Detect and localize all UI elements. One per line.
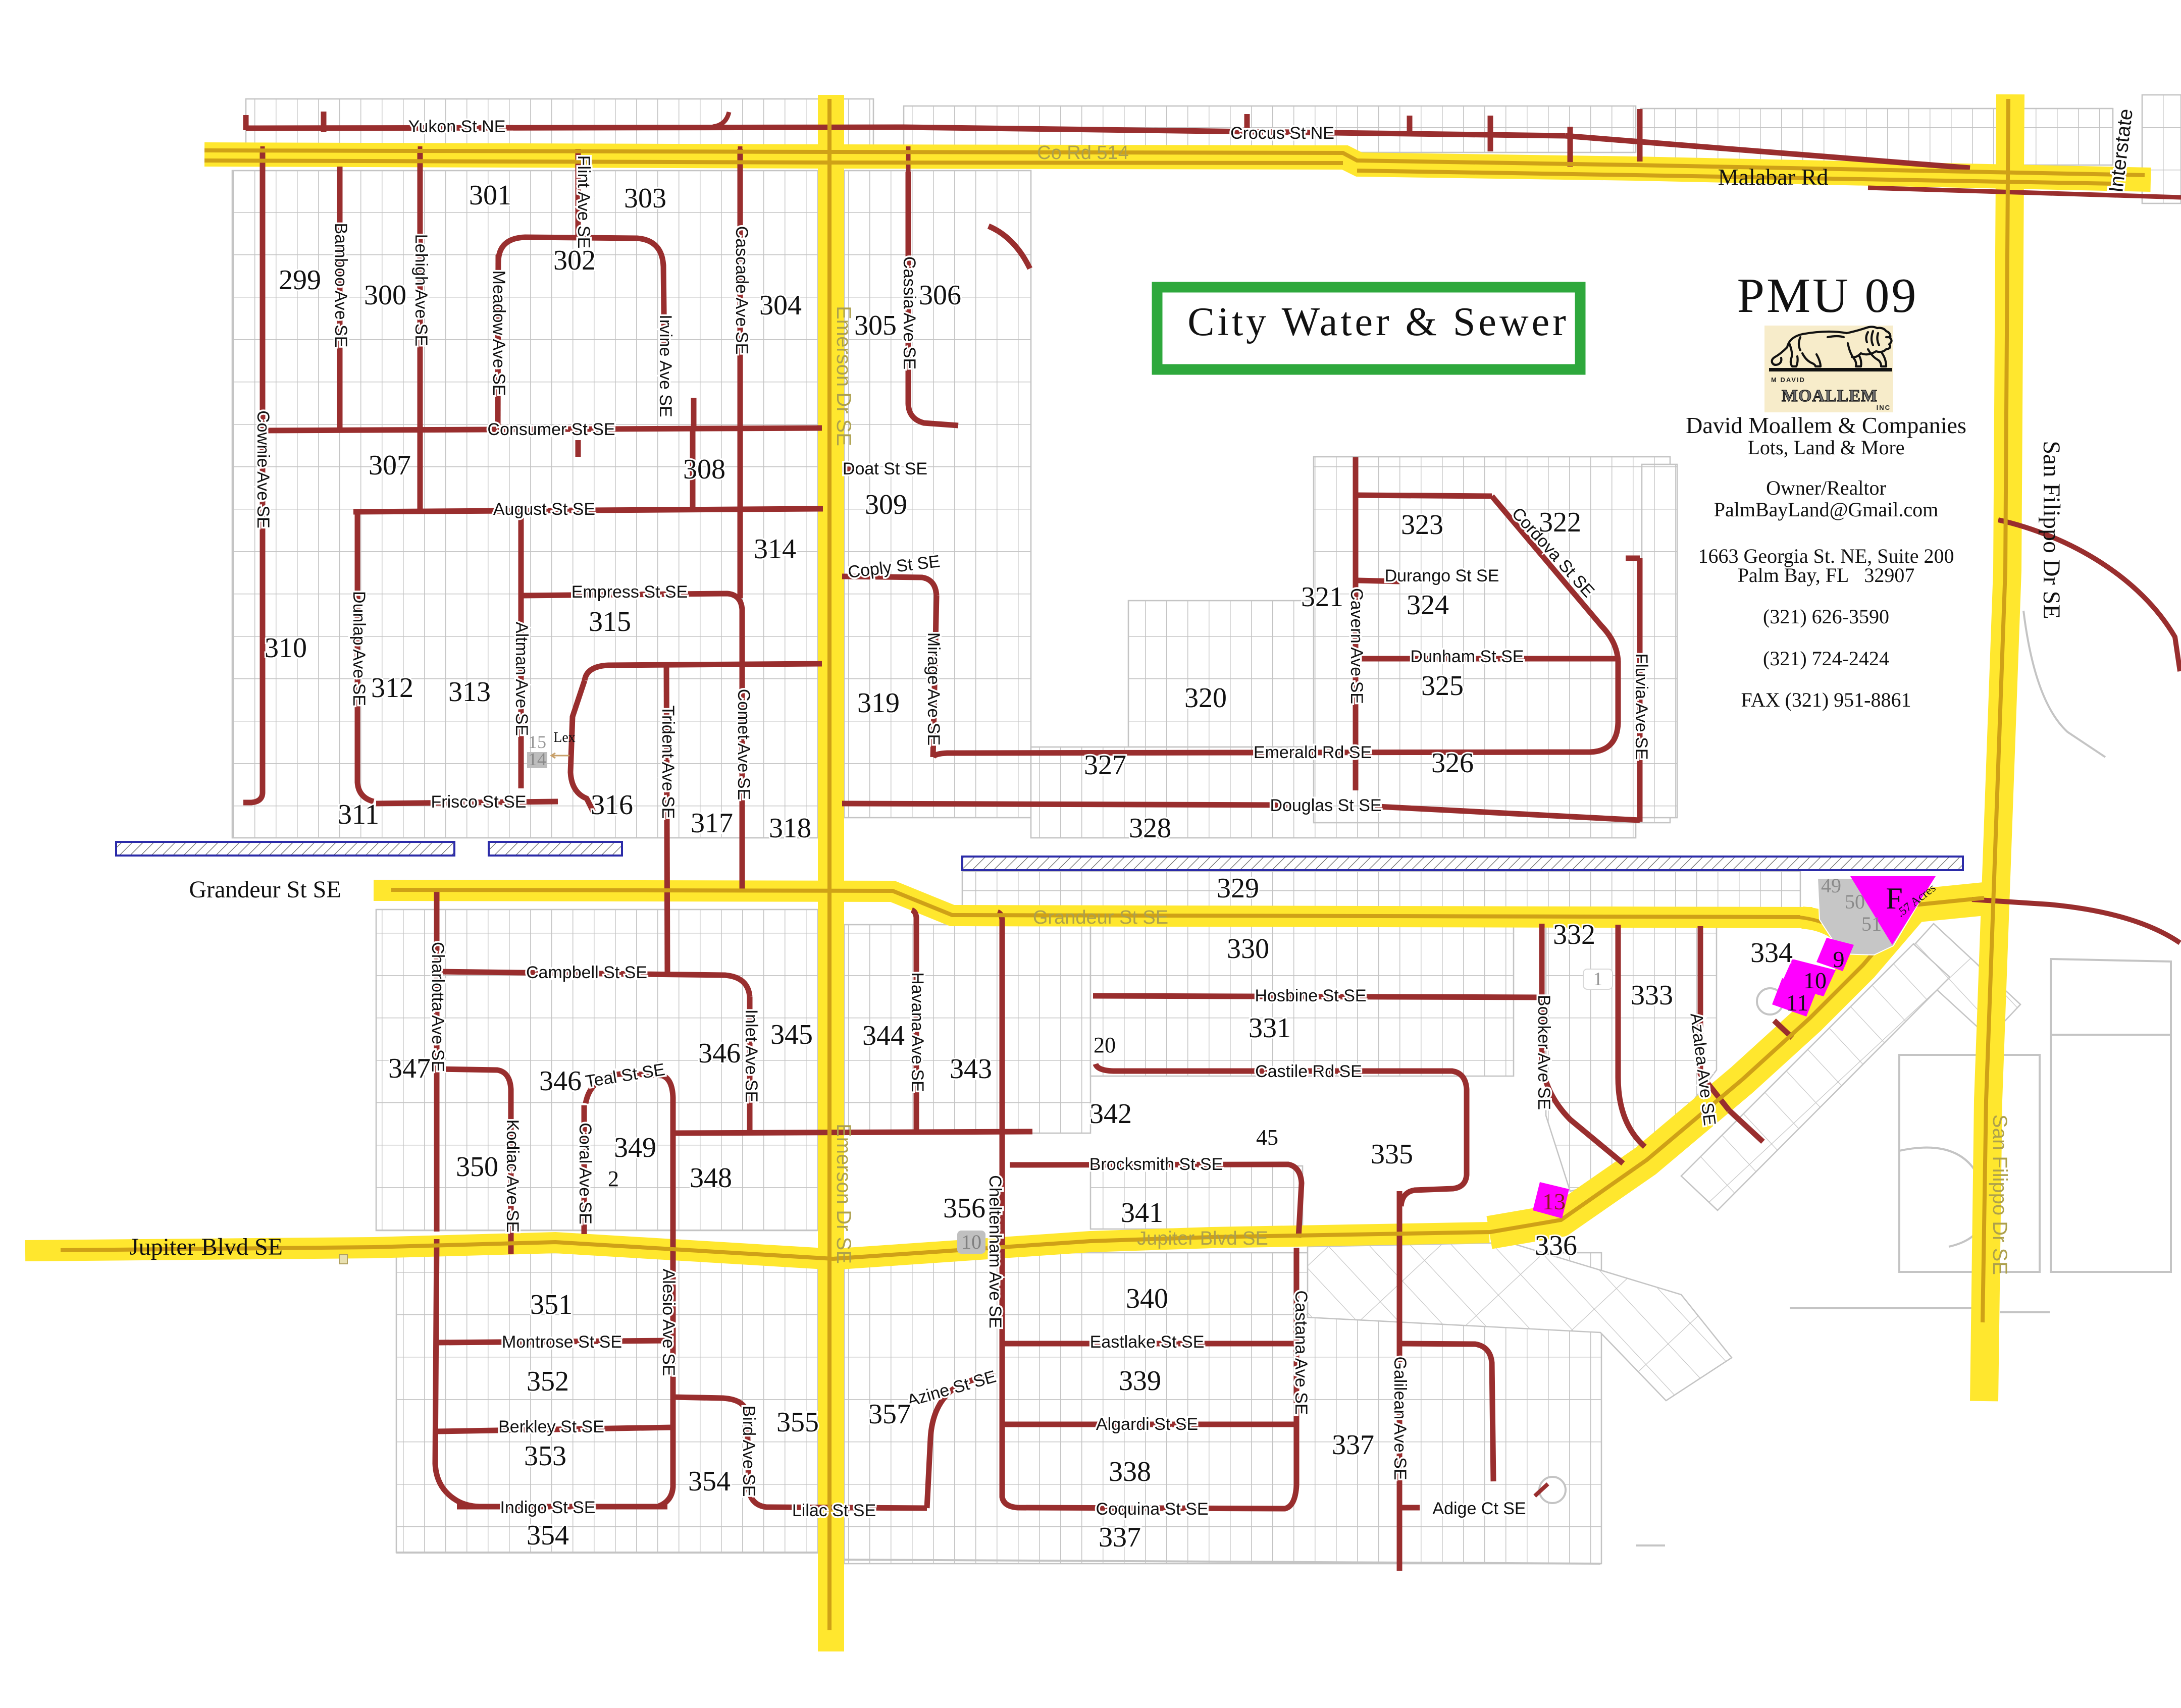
svg-text:333: 333: [1631, 980, 1673, 1011]
svg-text:(321) 724-2424: (321) 724-2424: [1763, 647, 1889, 670]
svg-text:San Filippo Dr SE: San Filippo Dr SE: [1989, 1114, 2011, 1275]
svg-text:311: 311: [338, 799, 379, 830]
svg-text:Emerald Rd SE: Emerald Rd SE: [1254, 743, 1372, 762]
svg-text:Cheltenham Ave SE: Cheltenham Ave SE: [985, 1175, 1005, 1328]
svg-text:304: 304: [759, 290, 802, 321]
svg-text:323: 323: [1401, 509, 1443, 541]
svg-text:Doat St SE: Doat St SE: [843, 459, 927, 478]
svg-text:325: 325: [1421, 670, 1464, 702]
svg-text:346: 346: [698, 1038, 741, 1069]
svg-text:335: 335: [1371, 1139, 1413, 1170]
svg-text:308: 308: [683, 454, 725, 485]
svg-text:INC: INC: [1877, 404, 1891, 411]
svg-text:330: 330: [1227, 933, 1269, 965]
svg-text:Inlet Ave SE: Inlet Ave SE: [742, 1009, 761, 1103]
svg-text:13: 13: [1542, 1189, 1566, 1214]
svg-text:Kodiac Ave SE: Kodiac Ave SE: [503, 1119, 522, 1233]
svg-text:342: 342: [1089, 1098, 1132, 1130]
svg-text:Empress St SE: Empress St SE: [572, 582, 688, 602]
svg-text:(321) 626-3590: (321) 626-3590: [1763, 605, 1889, 628]
svg-text:2: 2: [608, 1166, 619, 1191]
svg-text:Alesio Ave SE: Alesio Ave SE: [659, 1269, 678, 1376]
svg-text:1: 1: [1593, 969, 1603, 990]
svg-text:Yukon St NE: Yukon St NE: [408, 117, 506, 136]
svg-text:51: 51: [1861, 913, 1882, 935]
svg-text:49: 49: [1821, 874, 1841, 897]
svg-text:Durango St SE: Durango St SE: [1385, 566, 1499, 585]
svg-text:305: 305: [854, 310, 897, 341]
svg-text:Flint Ave SE: Flint Ave SE: [574, 155, 593, 249]
svg-text:354: 354: [688, 1466, 731, 1497]
svg-text:City Water & Sewer: City Water & Sewer: [1187, 300, 1569, 344]
svg-text:Coral Ave SE: Coral Ave SE: [576, 1123, 595, 1224]
svg-text:Malabar Rd: Malabar Rd: [1718, 164, 1828, 190]
svg-text:San Filippo Dr SE: San Filippo Dr SE: [2038, 441, 2065, 619]
svg-text:334: 334: [1750, 937, 1793, 969]
svg-text:355: 355: [776, 1407, 819, 1438]
svg-text:Lilac St SE: Lilac St SE: [792, 1501, 876, 1520]
svg-text:340: 340: [1126, 1283, 1168, 1314]
svg-text:316: 316: [591, 789, 633, 821]
svg-text:Brocksmith St SE: Brocksmith St SE: [1089, 1155, 1223, 1174]
svg-text:August St SE: August St SE: [493, 500, 595, 519]
svg-text:328: 328: [1129, 813, 1171, 844]
svg-text:307: 307: [369, 450, 411, 481]
svg-text:313: 313: [448, 676, 491, 708]
svg-text:Berkley St SE: Berkley St SE: [498, 1417, 604, 1436]
svg-text:347: 347: [388, 1053, 431, 1084]
svg-text:309: 309: [865, 489, 907, 520]
svg-text:Jupiter Blvd SE: Jupiter Blvd SE: [129, 1234, 283, 1260]
svg-text:Consumer St SE: Consumer St SE: [487, 420, 615, 439]
svg-text:337: 337: [1099, 1522, 1141, 1553]
svg-text:315: 315: [589, 606, 631, 637]
svg-text:303: 303: [624, 183, 666, 214]
svg-text:331: 331: [1249, 1012, 1291, 1044]
svg-text:Hosbine St SE: Hosbine St SE: [1255, 986, 1366, 1005]
svg-text:319: 319: [857, 687, 900, 719]
svg-text:Algardi St SE: Algardi St SE: [1096, 1415, 1198, 1434]
svg-text:PMU 09: PMU 09: [1737, 269, 1918, 323]
svg-text:10: 10: [961, 1231, 981, 1253]
svg-text:Castile Rd SE: Castile Rd SE: [1255, 1062, 1362, 1081]
svg-text:Grandeur St SE: Grandeur St SE: [189, 876, 341, 903]
svg-text:338: 338: [1109, 1456, 1151, 1487]
svg-text:Comet Ave SE: Comet Ave SE: [734, 689, 753, 800]
svg-text:Grandeur St SE: Grandeur St SE: [1033, 907, 1168, 928]
svg-text:354: 354: [527, 1520, 569, 1551]
svg-text:326: 326: [1431, 748, 1474, 779]
svg-text:Frisco St SE: Frisco St SE: [431, 792, 527, 812]
svg-text:45: 45: [1256, 1125, 1278, 1150]
svg-text:Indigo St SE: Indigo St SE: [500, 1498, 595, 1517]
svg-text:Trident Ave SE: Trident Ave SE: [658, 706, 678, 819]
svg-text:345: 345: [770, 1019, 813, 1050]
svg-text:Galilean Ave SE: Galilean Ave SE: [1390, 1356, 1410, 1480]
svg-text:320: 320: [1184, 682, 1227, 714]
svg-text:301: 301: [469, 180, 511, 211]
svg-text:MOALLEM: MOALLEM: [1782, 387, 1878, 405]
svg-text:341: 341: [1121, 1197, 1163, 1229]
svg-text:Dunham St SE: Dunham St SE: [1411, 647, 1524, 666]
svg-text:353: 353: [524, 1440, 566, 1472]
svg-text:M DAVID: M DAVID: [1771, 376, 1805, 384]
svg-text:50: 50: [1845, 890, 1865, 913]
svg-text:David Moallem & Companies: David Moallem & Companies: [1686, 412, 1966, 438]
svg-text:348: 348: [690, 1162, 732, 1194]
svg-text:Altman Ave SE: Altman Ave SE: [512, 622, 531, 736]
svg-text:349: 349: [614, 1132, 656, 1163]
svg-text:Emerson Dr SE: Emerson Dr SE: [833, 1124, 855, 1264]
svg-text:Douglas St SE: Douglas St SE: [1270, 796, 1381, 815]
svg-text:344: 344: [862, 1020, 905, 1051]
svg-text:302: 302: [553, 245, 596, 276]
svg-text:322: 322: [1539, 507, 1581, 538]
svg-text:Lex: Lex: [553, 730, 576, 745]
svg-text:Lehigh Ave SE: Lehigh Ave SE: [411, 234, 431, 346]
svg-text:Bird Ave SE: Bird Ave SE: [739, 1406, 758, 1497]
svg-text:346: 346: [539, 1065, 582, 1097]
svg-text:300: 300: [364, 280, 406, 311]
svg-text:Irvine Ave SE: Irvine Ave SE: [656, 314, 675, 417]
svg-text:Cavern Ave SE: Cavern Ave SE: [1347, 588, 1366, 704]
svg-text:329: 329: [1217, 873, 1259, 904]
svg-text:Charlotta Ave SE: Charlotta Ave SE: [428, 942, 447, 1072]
svg-text:339: 339: [1119, 1365, 1161, 1397]
svg-text:343: 343: [950, 1053, 992, 1085]
svg-text:310: 310: [265, 632, 307, 664]
svg-text:Cassia Ave SE: Cassia Ave SE: [900, 256, 919, 369]
svg-text:Emerson Dr SE: Emerson Dr SE: [833, 306, 855, 446]
svg-text:Adige Ct SE: Adige Ct SE: [1432, 1499, 1526, 1518]
svg-text:357: 357: [868, 1399, 911, 1430]
svg-text:Bamboo Ave SE: Bamboo Ave SE: [331, 223, 350, 348]
svg-text:352: 352: [527, 1366, 569, 1397]
svg-text:Palm Bay, FL 32907: Palm Bay, FL 32907: [1738, 564, 1915, 586]
svg-text:350: 350: [456, 1151, 498, 1183]
svg-text:Owner/Realtor: Owner/Realtor: [1766, 476, 1886, 499]
svg-text:FAX (321) 951-8861: FAX (321) 951-8861: [1741, 688, 1911, 711]
svg-text:332: 332: [1553, 919, 1595, 950]
svg-text:351: 351: [530, 1289, 573, 1320]
svg-text:9: 9: [1833, 946, 1845, 972]
svg-text:Havana Ave SE: Havana Ave SE: [908, 972, 927, 1092]
svg-text:306: 306: [919, 280, 961, 311]
svg-text:321: 321: [1301, 581, 1343, 613]
svg-text:336: 336: [1535, 1230, 1577, 1261]
svg-text:Campbell St SE: Campbell St SE: [526, 963, 647, 982]
svg-text:Eastlake St SE: Eastlake St SE: [1090, 1332, 1205, 1352]
svg-text:Coquina St SE: Coquina St SE: [1096, 1500, 1208, 1519]
svg-text:Montrose St SE: Montrose St SE: [502, 1332, 622, 1352]
svg-text:327: 327: [1084, 750, 1126, 781]
svg-text:11: 11: [1786, 990, 1808, 1016]
svg-text:Castana Ave SE: Castana Ave SE: [1291, 1291, 1311, 1415]
svg-text:Booker Ave SE: Booker Ave SE: [1534, 995, 1553, 1110]
svg-text:Crocus St NE: Crocus St NE: [1230, 124, 1334, 143]
svg-text:299: 299: [279, 264, 321, 296]
svg-text:312: 312: [371, 672, 413, 704]
svg-text:Mirage Ave SE: Mirage Ave SE: [924, 632, 943, 745]
svg-text:337: 337: [1332, 1429, 1374, 1461]
svg-text:Cownie Ave SE: Cownie Ave SE: [253, 410, 273, 528]
svg-text:356: 356: [943, 1193, 985, 1224]
svg-text:Co Rd 514: Co Rd 514: [1037, 142, 1129, 164]
svg-text:Meadow Ave SE: Meadow Ave SE: [489, 271, 508, 396]
svg-text:Dunlap Ave SE: Dunlap Ave SE: [349, 591, 369, 706]
svg-text:Cascade Ave SE: Cascade Ave SE: [732, 226, 751, 355]
svg-text:318: 318: [769, 813, 811, 844]
svg-text:314: 314: [754, 533, 796, 565]
svg-text:Lots, Land & More: Lots, Land & More: [1747, 436, 1904, 459]
svg-text:PalmBayLand@Gmail.com: PalmBayLand@Gmail.com: [1714, 498, 1939, 521]
svg-text:324: 324: [1407, 590, 1449, 621]
svg-text:317: 317: [691, 808, 733, 839]
svg-text:14: 14: [528, 749, 546, 769]
svg-text:20: 20: [1094, 1033, 1116, 1057]
svg-text:Fluvia Ave SE: Fluvia Ave SE: [1632, 653, 1651, 760]
svg-text:Jupiter Blvd SE: Jupiter Blvd SE: [1137, 1228, 1268, 1249]
